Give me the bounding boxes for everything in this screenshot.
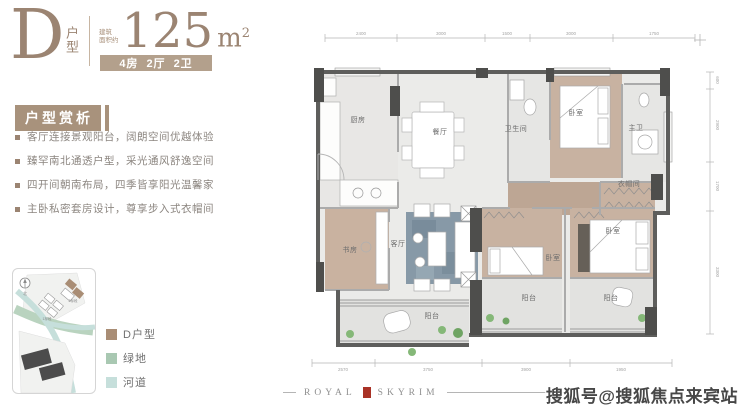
brand-word-left: ROYAL [304, 388, 356, 398]
balcony-mid-floor [482, 278, 562, 332]
map-phase1-label: 1标段 [43, 316, 52, 321]
balcony-mid-label: 阳台 [522, 293, 537, 302]
map-phase2-label: 2标段 [69, 298, 78, 303]
area-note: 建筑 面积约 [99, 29, 119, 44]
svg-text:3900: 3900 [521, 367, 532, 372]
svg-text:1950: 1950 [616, 367, 627, 372]
spec-baths: 2卫 [174, 55, 193, 71]
unit-letter: D [10, 0, 65, 72]
svg-text:3000: 3000 [436, 31, 447, 36]
site-map: 1标段 2标段 北 [13, 269, 95, 393]
svg-text:2900: 2900 [715, 120, 720, 131]
analysis-title: 户型赏析 [15, 105, 101, 131]
bullet-row: 四开间朝南布局，四季皆享阳光温馨家 [15, 179, 245, 191]
bedroom-right-label: 卧室 [606, 226, 621, 235]
svg-text:2570: 2570 [338, 367, 349, 372]
svg-text:3750: 3750 [423, 367, 434, 372]
bullet-square-icon [15, 183, 20, 188]
bullet-row: 主卧私密套房设计，尊享步入式衣帽间 [15, 203, 245, 215]
closet-label: 衣帽间 [618, 179, 641, 188]
bedroom-top-bed [560, 86, 610, 148]
legend-item-green: 绿地 [106, 350, 156, 366]
bullet-row: 臻罕南北通透户型，采光通风舒逸空间 [15, 155, 245, 167]
svg-text:北: 北 [23, 290, 27, 296]
unit-word: 户型 [64, 26, 79, 54]
svg-text:1500: 1500 [502, 31, 513, 36]
analysis-bullets: 客厅连接景观阳台，阔朗空间优越体验 臻罕南北通透户型，采光通风舒逸空间 四开间朝… [15, 131, 245, 227]
master-bath-label: 主卫 [629, 123, 644, 132]
bullet-square-icon [15, 135, 20, 140]
area-value: 125 [122, 8, 214, 54]
svg-text:1750: 1750 [649, 31, 660, 36]
svg-text:3300: 3300 [715, 267, 720, 278]
spec-halls: 2厅 [146, 55, 165, 71]
legend-swatch-d-unit [106, 329, 117, 340]
dining-label: 餐厅 [433, 127, 448, 136]
brand-footer: ROYAL SKYRIM [283, 387, 579, 398]
living-label: 客厅 [391, 239, 406, 248]
svg-text:3000: 3000 [566, 31, 577, 36]
svg-text:2400: 2400 [356, 31, 367, 36]
brand-emblem-icon [363, 387, 371, 398]
svg-text:600: 600 [715, 76, 720, 84]
living-furniture [406, 204, 478, 291]
spec-rooms: 4房 [119, 55, 138, 71]
bullet-row: 客厅连接景观阳台，阔朗空间优越体验 [15, 131, 245, 143]
bedroom-mid-label: 卧室 [546, 253, 561, 262]
kitchen-label: 厨房 [351, 115, 366, 124]
header-divider [89, 16, 90, 66]
study-label: 书房 [343, 245, 358, 254]
balcony-right-floor [570, 278, 655, 332]
svg-text:1700: 1700 [715, 181, 720, 192]
area-unit: m2 [217, 19, 250, 54]
balcony-right-label: 阳台 [604, 293, 619, 302]
legend-item-d-unit: D户型 [106, 326, 156, 342]
area-block: 建筑 面积约 125 m2 [99, 8, 250, 54]
legend-item-river: 河道 [106, 374, 156, 390]
floor-plan: 厨房 餐厅 卫生间 卧室 主卫 衣帽间 书房 客厅 阳台 卧室 阳台 卧室 阳台… [292, 22, 740, 374]
analysis-title-wrap: 户型赏析 [15, 105, 109, 131]
brand-line-left [283, 392, 296, 393]
dim-line-right [706, 72, 714, 334]
spec-bar: 4房 2厅 2卫 [100, 55, 212, 71]
bullet-square-icon [15, 207, 20, 212]
bedroom-top-label: 卧室 [569, 108, 584, 117]
legend-swatch-river [106, 377, 117, 388]
balcony-main-label: 阳台 [425, 311, 440, 320]
analysis-title-bar [105, 105, 109, 131]
map-legend: D户型 绿地 河道 [106, 326, 156, 398]
legend-swatch-green [106, 353, 117, 364]
brand-word-right: SKYRIM [378, 388, 439, 398]
bullet-square-icon [15, 159, 20, 164]
watermark: 搜狐号@搜狐焦点来宾站 [546, 382, 738, 407]
bath-label: 卫生间 [505, 124, 528, 133]
dim-line-bottom [312, 359, 672, 367]
crosshair-icon [694, 34, 706, 46]
site-map-card: 1标段 2标段 北 [12, 268, 96, 394]
